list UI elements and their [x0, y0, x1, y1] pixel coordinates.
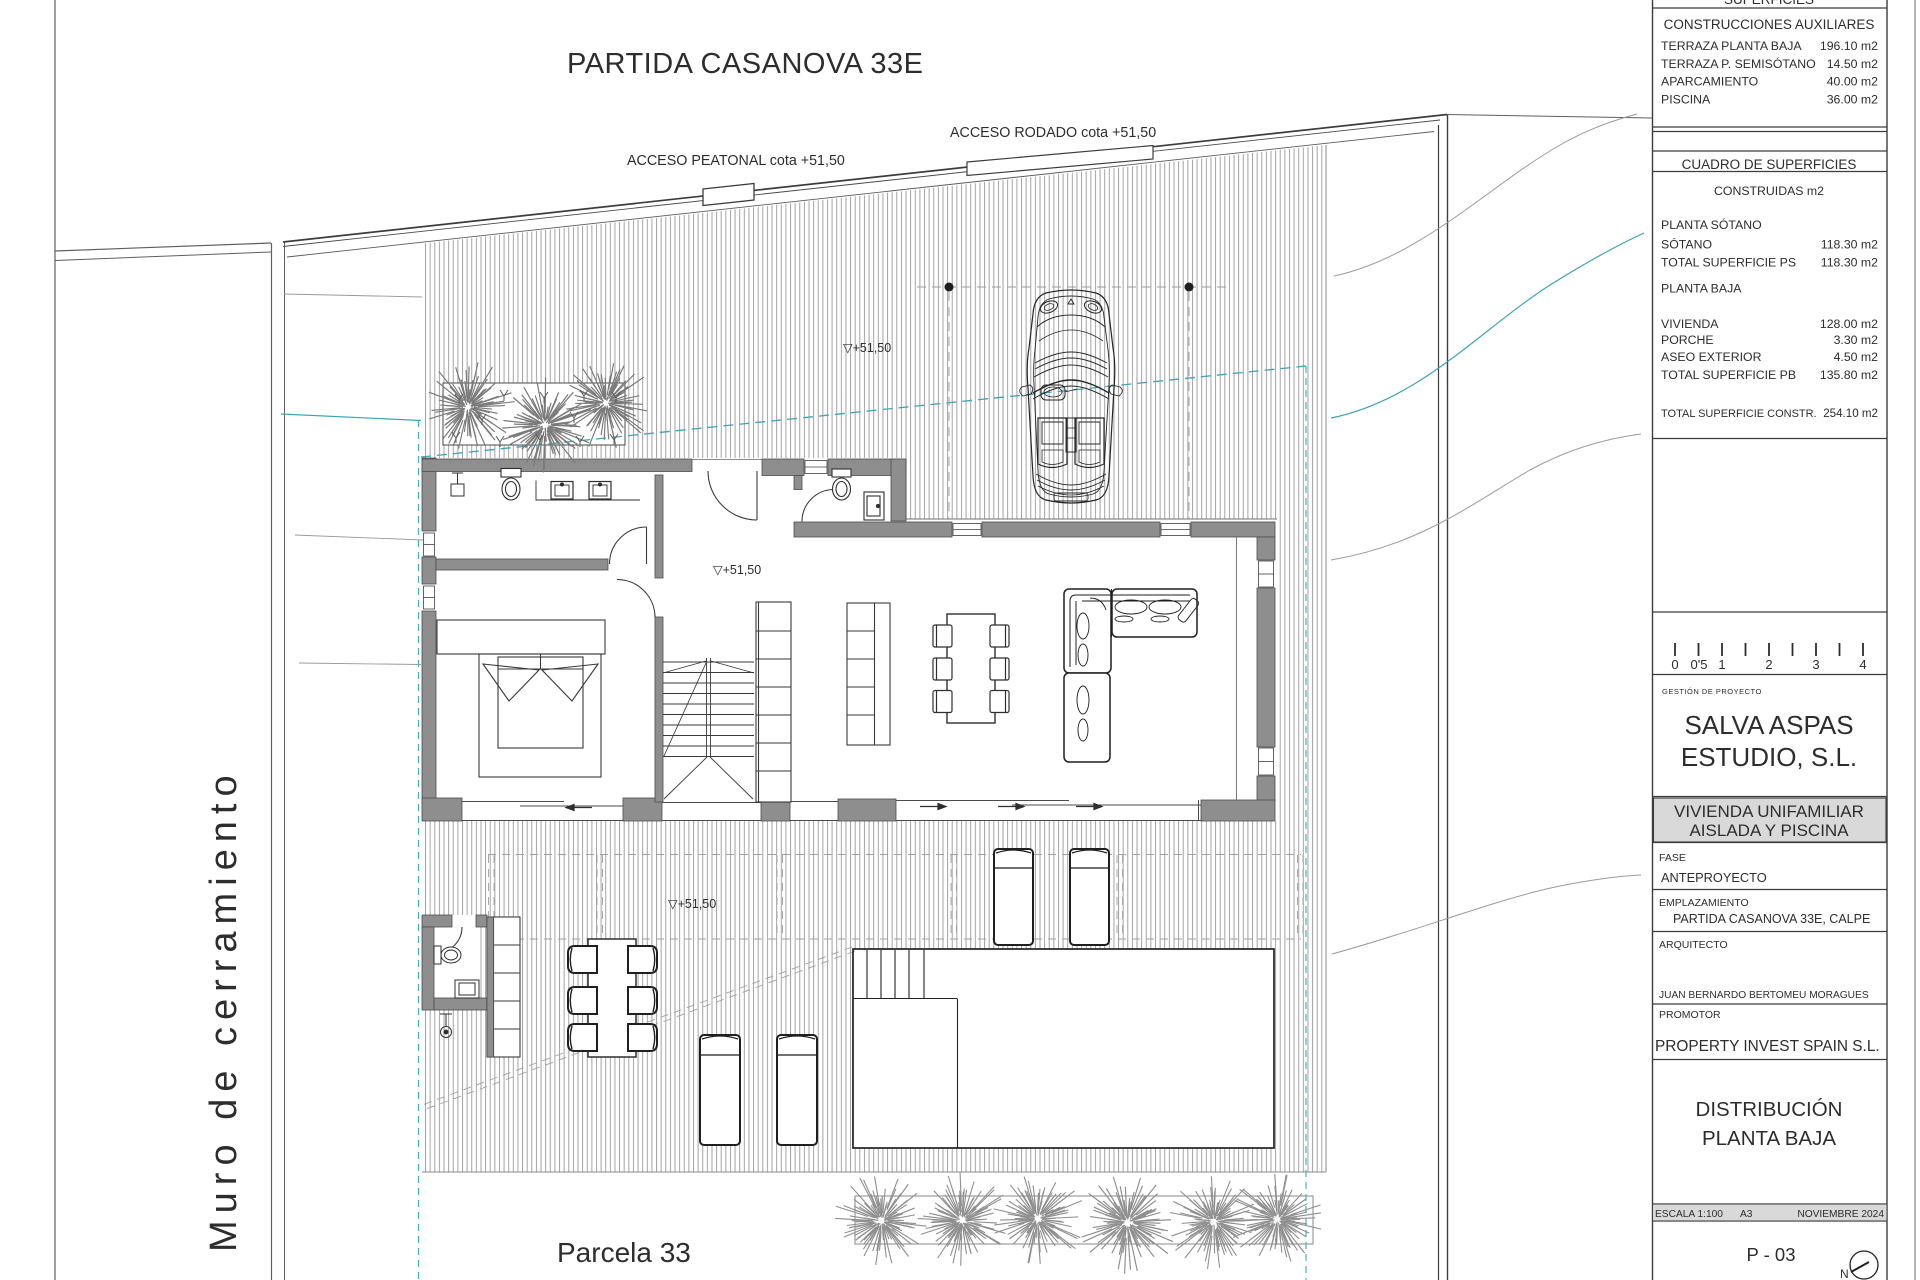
- svg-text:ACCESO RODADO cota +51,50: ACCESO RODADO cota +51,50: [950, 125, 1156, 141]
- svg-text:PLANTA BAJA: PLANTA BAJA: [1661, 282, 1742, 296]
- svg-text:NOVIEMBRE 2024: NOVIEMBRE 2024: [1797, 1209, 1884, 1220]
- svg-text:4.50 m2: 4.50 m2: [1834, 350, 1879, 364]
- svg-text:DISTRIBUCIÓN: DISTRIBUCIÓN: [1696, 1098, 1843, 1121]
- svg-text:ESCALA 1:100: ESCALA 1:100: [1655, 1209, 1723, 1220]
- svg-text:Muro de cerramiento: Muro de cerramiento: [203, 768, 245, 1252]
- svg-text:CUADRO DE SUPERFICIES: CUADRO DE SUPERFICIES: [1682, 157, 1857, 172]
- svg-text:PORCHE: PORCHE: [1661, 333, 1714, 347]
- svg-text:128.00 m2: 128.00 m2: [1820, 317, 1878, 331]
- svg-text:SALVA ASPAS: SALVA ASPAS: [1684, 710, 1853, 740]
- svg-text:PISCINA: PISCINA: [1661, 93, 1711, 107]
- svg-text:PLANTA BAJA: PLANTA BAJA: [1702, 1127, 1836, 1150]
- svg-text:254.10 m2: 254.10 m2: [1823, 407, 1878, 420]
- svg-text:EMPLAZAMIENTO: EMPLAZAMIENTO: [1659, 897, 1749, 909]
- svg-text:SÓTANO: SÓTANO: [1661, 237, 1712, 252]
- svg-text:36.00 m2: 36.00 m2: [1827, 93, 1878, 107]
- svg-text:ACCESO PEATONAL cota +51,50: ACCESO PEATONAL cota +51,50: [627, 153, 845, 169]
- svg-text:PLANTA SÓTANO: PLANTA SÓTANO: [1661, 217, 1762, 232]
- svg-text:14.50 m2: 14.50 m2: [1827, 57, 1878, 71]
- svg-text:1: 1: [1718, 657, 1725, 672]
- svg-text:ASEO EXTERIOR: ASEO EXTERIOR: [1661, 350, 1762, 364]
- svg-text:TERRAZA PLANTA BAJA: TERRAZA PLANTA BAJA: [1661, 39, 1802, 53]
- svg-text:TOTAL SUPERFICIE PB: TOTAL SUPERFICIE PB: [1661, 368, 1796, 382]
- svg-text:2: 2: [1765, 657, 1772, 672]
- svg-text:118.30 m2: 118.30 m2: [1821, 238, 1878, 252]
- svg-text:PROPERTY INVEST SPAIN S.L.: PROPERTY INVEST SPAIN S.L.: [1655, 1038, 1880, 1055]
- svg-text:ESTUDIO, S.L.: ESTUDIO, S.L.: [1681, 742, 1857, 772]
- svg-text:AISLADA Y PISCINA: AISLADA Y PISCINA: [1689, 821, 1849, 840]
- svg-text:135.80 m2: 135.80 m2: [1820, 368, 1878, 382]
- svg-text:TOTAL SUPERFICIE PS: TOTAL SUPERFICIE PS: [1661, 256, 1796, 270]
- svg-text:118.30 m2: 118.30 m2: [1821, 256, 1878, 270]
- svg-text:TERRAZA P. SEMISÓTANO: TERRAZA P. SEMISÓTANO: [1661, 56, 1816, 71]
- svg-text:40.00 m2: 40.00 m2: [1827, 75, 1878, 89]
- svg-text:VIVIENDA: VIVIENDA: [1661, 317, 1719, 331]
- svg-text:PROMOTOR: PROMOTOR: [1659, 1009, 1721, 1021]
- svg-text:0'5: 0'5: [1691, 657, 1708, 672]
- svg-text:PARTIDA CASANOVA 33E, CALPE: PARTIDA CASANOVA 33E, CALPE: [1673, 912, 1870, 926]
- svg-text:TOTAL SUPERFICIE CONSTR.: TOTAL SUPERFICIE CONSTR.: [1661, 408, 1817, 420]
- svg-text:0: 0: [1671, 657, 1678, 672]
- svg-text:GESTIÓN DE PROYECTO: GESTIÓN DE PROYECTO: [1662, 687, 1762, 696]
- svg-text:4: 4: [1859, 657, 1866, 672]
- svg-text:FASE: FASE: [1659, 852, 1686, 864]
- svg-text:Parcela 33: Parcela 33: [557, 1237, 691, 1268]
- svg-text:CONSTRUCCIONES AUXILIARES: CONSTRUCCIONES AUXILIARES: [1664, 17, 1875, 32]
- svg-text:ANTEPROYECTO: ANTEPROYECTO: [1661, 870, 1767, 885]
- svg-text:A3: A3: [1740, 1209, 1753, 1220]
- svg-text:APARCAMIENTO: APARCAMIENTO: [1661, 75, 1758, 89]
- svg-text:P - 03: P - 03: [1746, 1244, 1795, 1265]
- svg-text:196.10 m2: 196.10 m2: [1820, 39, 1878, 53]
- svg-text:▽+51,50: ▽+51,50: [713, 563, 761, 577]
- svg-text:CONSTRUIDAS m2: CONSTRUIDAS m2: [1714, 184, 1824, 198]
- svg-text:VIVIENDA UNIFAMILIAR: VIVIENDA UNIFAMILIAR: [1674, 802, 1864, 821]
- svg-text:▽+51,50: ▽+51,50: [843, 341, 891, 355]
- svg-text:N: N: [1840, 1267, 1849, 1280]
- svg-text:PARTIDA CASANOVA 33E: PARTIDA CASANOVA 33E: [567, 48, 924, 80]
- svg-text:ARQUITECTO: ARQUITECTO: [1659, 939, 1728, 951]
- svg-text:SUPERFICIES: SUPERFICIES: [1724, 0, 1814, 7]
- svg-text:3: 3: [1812, 657, 1819, 672]
- svg-text:3.30 m2: 3.30 m2: [1834, 333, 1879, 347]
- svg-text:▽+51,50: ▽+51,50: [668, 897, 716, 911]
- svg-text:JUAN BERNARDO BERTOMEU MORAGUE: JUAN BERNARDO BERTOMEU MORAGUES: [1659, 990, 1869, 1001]
